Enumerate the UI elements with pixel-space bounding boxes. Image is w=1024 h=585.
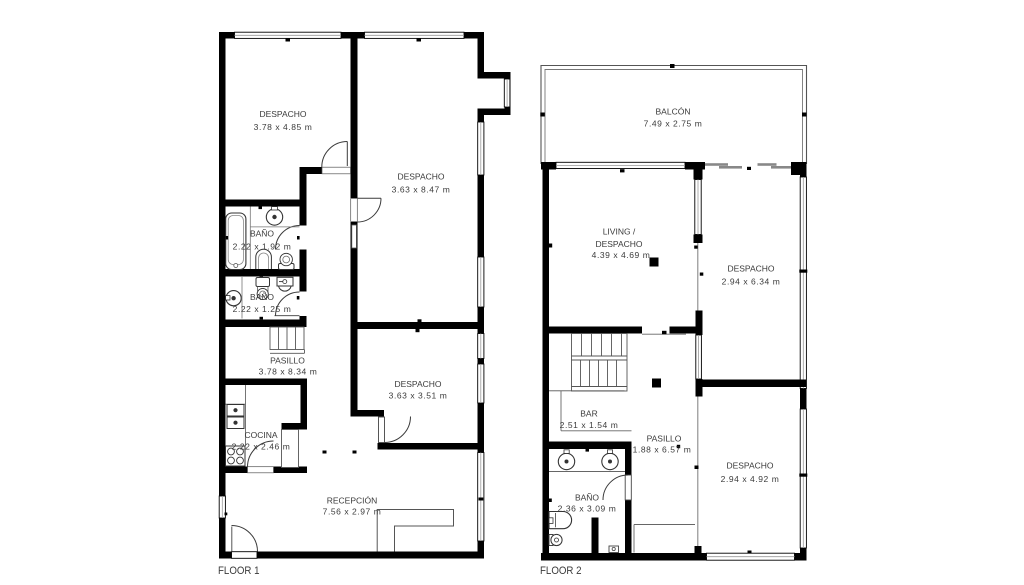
svg-text:COCINA: COCINA	[244, 430, 277, 440]
svg-text:2.94 x 4.92 m: 2.94 x 4.92 m	[721, 474, 780, 484]
svg-text:DESPACHO: DESPACHO	[397, 172, 444, 182]
svg-text:DESPACHO: DESPACHO	[727, 264, 774, 274]
svg-text:7.56 x 2.97 m: 7.56 x 2.97 m	[323, 507, 382, 517]
svg-text:BAÑO: BAÑO	[250, 292, 274, 302]
svg-text:2.22 x 1.92 m: 2.22 x 1.92 m	[233, 242, 292, 252]
svg-text:2.22 x 1.25 m: 2.22 x 1.25 m	[233, 304, 292, 314]
svg-text:2.94 x 6.34 m: 2.94 x 6.34 m	[722, 277, 781, 287]
svg-text:LIVING /: LIVING /	[603, 227, 636, 237]
svg-text:3.63 x 3.51 m: 3.63 x 3.51 m	[389, 391, 448, 401]
svg-text:DESPACHO: DESPACHO	[259, 109, 306, 119]
svg-text:DESPACHO: DESPACHO	[394, 379, 441, 389]
svg-text:2.36 x 3.09 m: 2.36 x 3.09 m	[558, 504, 617, 514]
svg-text:DESPACHO: DESPACHO	[726, 461, 773, 471]
svg-text:BAÑO: BAÑO	[575, 493, 599, 503]
svg-text:BALCÓN: BALCÓN	[656, 107, 691, 117]
svg-text:3.78 x 4.85 m: 3.78 x 4.85 m	[254, 122, 313, 132]
svg-text:4.39 x 4.69 m: 4.39 x 4.69 m	[592, 250, 651, 260]
svg-text:2.22 x 2.46 m: 2.22 x 2.46 m	[232, 442, 291, 452]
svg-text:PASILLO: PASILLO	[270, 356, 305, 366]
svg-text:2.51 x 1.54 m: 2.51 x 1.54 m	[560, 420, 619, 430]
svg-text:PASILLO: PASILLO	[647, 434, 682, 444]
svg-text:FLOOR 1: FLOOR 1	[218, 565, 260, 577]
svg-text:1.88 x 6.57 m: 1.88 x 6.57 m	[633, 445, 692, 455]
svg-text:7.49 x 2.75 m: 7.49 x 2.75 m	[644, 119, 703, 129]
svg-text:3.78 x 8.34 m: 3.78 x 8.34 m	[259, 367, 318, 377]
svg-text:DESPACHO: DESPACHO	[595, 239, 642, 249]
svg-text:3.63 x 8.47 m: 3.63 x 8.47 m	[392, 185, 451, 195]
svg-text:BAÑO: BAÑO	[250, 229, 274, 239]
svg-text:FLOOR 2: FLOOR 2	[540, 565, 582, 577]
svg-text:BAR: BAR	[580, 409, 597, 419]
svg-text:RECEPCIÓN: RECEPCIÓN	[327, 496, 378, 506]
